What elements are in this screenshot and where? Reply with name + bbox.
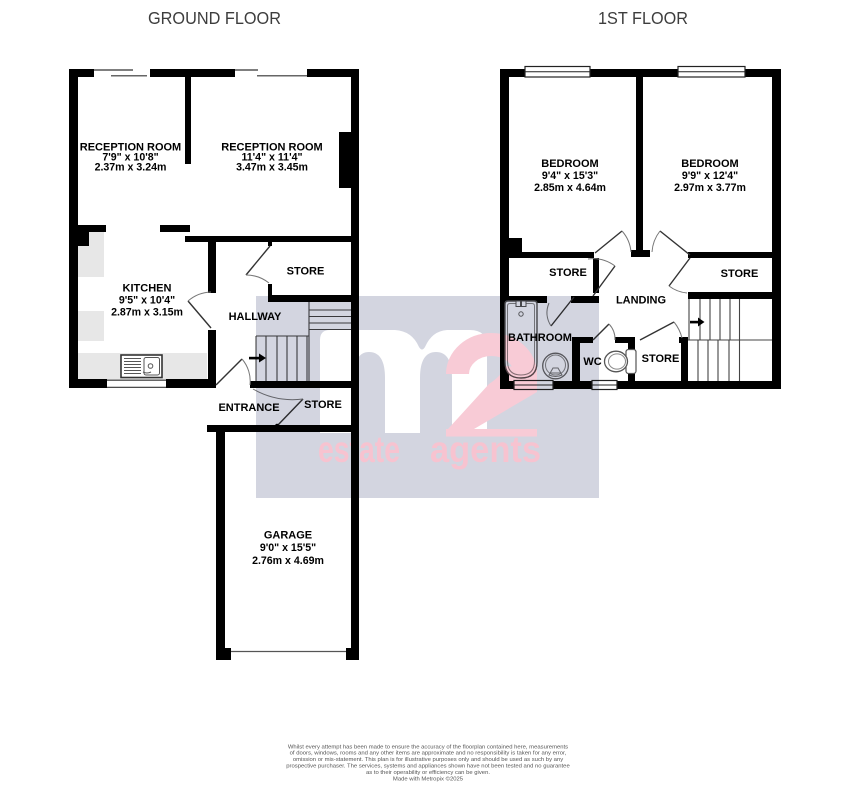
svg-text:STORE: STORE — [549, 267, 587, 279]
svg-text:GARAGE: GARAGE — [264, 530, 312, 542]
svg-text:BEDROOM: BEDROOM — [681, 158, 738, 170]
svg-text:KITCHEN: KITCHEN — [123, 283, 172, 295]
svg-text:agents: agents — [430, 429, 541, 470]
svg-text:2.37m x 3.24m: 2.37m x 3.24m — [95, 162, 167, 174]
svg-text:2.85m x 4.64m: 2.85m x 4.64m — [534, 182, 606, 194]
svg-text:Made with Metropix ©2025: Made with Metropix ©2025 — [393, 775, 464, 782]
svg-text:prospective purchaser. The ser: prospective purchaser. The services, sys… — [286, 764, 570, 770]
svg-text:of doors, windows, rooms and a: of doors, windows, rooms and any other i… — [290, 751, 567, 757]
svg-text:STORE: STORE — [642, 353, 680, 365]
svg-text:as to their operability or eff: as to their operability or efficiency ca… — [366, 770, 490, 776]
svg-text:omission or mis-statement. Thi: omission or mis-statement. This plan is … — [293, 757, 563, 763]
svg-text:9'5" x 10'4": 9'5" x 10'4" — [119, 295, 175, 307]
svg-text:LANDING: LANDING — [616, 295, 666, 307]
svg-text:9'0" x 15'5": 9'0" x 15'5" — [260, 542, 316, 554]
svg-text:BEDROOM: BEDROOM — [541, 158, 598, 170]
svg-text:GROUND FLOOR: GROUND FLOOR — [148, 8, 281, 28]
svg-text:estate: estate — [318, 429, 400, 470]
svg-text:9'9" x 12'4": 9'9" x 12'4" — [682, 170, 738, 182]
svg-text:3.47m x 3.45m: 3.47m x 3.45m — [236, 162, 308, 174]
svg-text:Whilst every attempt has been: Whilst every attempt has been made to en… — [288, 744, 568, 750]
svg-text:1ST FLOOR: 1ST FLOOR — [598, 8, 688, 28]
svg-text:STORE: STORE — [287, 266, 325, 278]
svg-text:STORE: STORE — [721, 268, 759, 280]
svg-text:9'4" x 15'3": 9'4" x 15'3" — [542, 170, 598, 182]
svg-text:2.97m x 3.77m: 2.97m x 3.77m — [674, 182, 746, 194]
svg-text:2.87m x 3.15m: 2.87m x 3.15m — [111, 307, 183, 319]
svg-text:2.76m x 4.69m: 2.76m x 4.69m — [252, 555, 324, 567]
